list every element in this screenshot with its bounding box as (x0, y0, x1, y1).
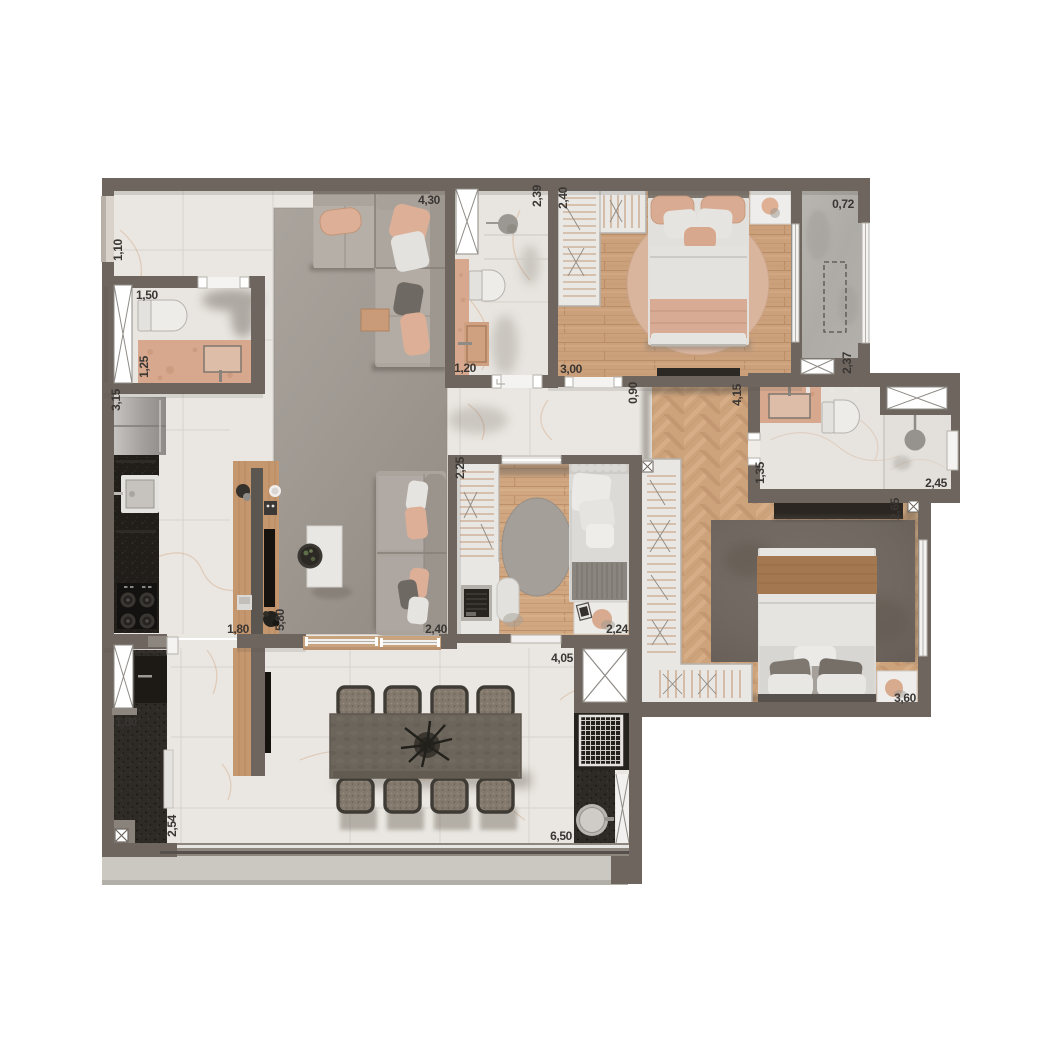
svg-text:1,50: 1,50 (136, 288, 158, 302)
svg-text:2,45: 2,45 (925, 476, 947, 490)
svg-text:1,10: 1,10 (111, 239, 125, 261)
svg-text:4,05: 4,05 (551, 651, 573, 665)
svg-text:4,30: 4,30 (418, 193, 440, 207)
svg-text:2,54: 2,54 (165, 814, 179, 836)
svg-text:3,00: 3,00 (560, 362, 582, 376)
svg-text:0,90: 0,90 (626, 381, 640, 403)
svg-text:2,25: 2,25 (453, 456, 467, 478)
svg-text:1,20: 1,20 (454, 361, 476, 375)
svg-text:6,50: 6,50 (550, 829, 572, 843)
svg-text:2,65: 2,65 (888, 497, 902, 519)
svg-text:2,37: 2,37 (840, 351, 854, 373)
svg-text:3,60: 3,60 (894, 691, 916, 705)
svg-text:5,80: 5,80 (273, 608, 287, 630)
svg-text:2,40: 2,40 (425, 622, 447, 636)
svg-text:2,24: 2,24 (606, 622, 628, 636)
svg-text:2,39: 2,39 (530, 184, 544, 206)
svg-text:4,15: 4,15 (730, 383, 744, 405)
svg-text:1,25: 1,25 (137, 355, 151, 377)
svg-text:1,80: 1,80 (115, 715, 137, 729)
svg-text:0,72: 0,72 (832, 197, 854, 211)
svg-text:2,40: 2,40 (556, 186, 570, 208)
svg-text:1,80: 1,80 (227, 622, 249, 636)
svg-text:3,15: 3,15 (109, 388, 123, 410)
svg-text:1,35: 1,35 (753, 461, 767, 483)
